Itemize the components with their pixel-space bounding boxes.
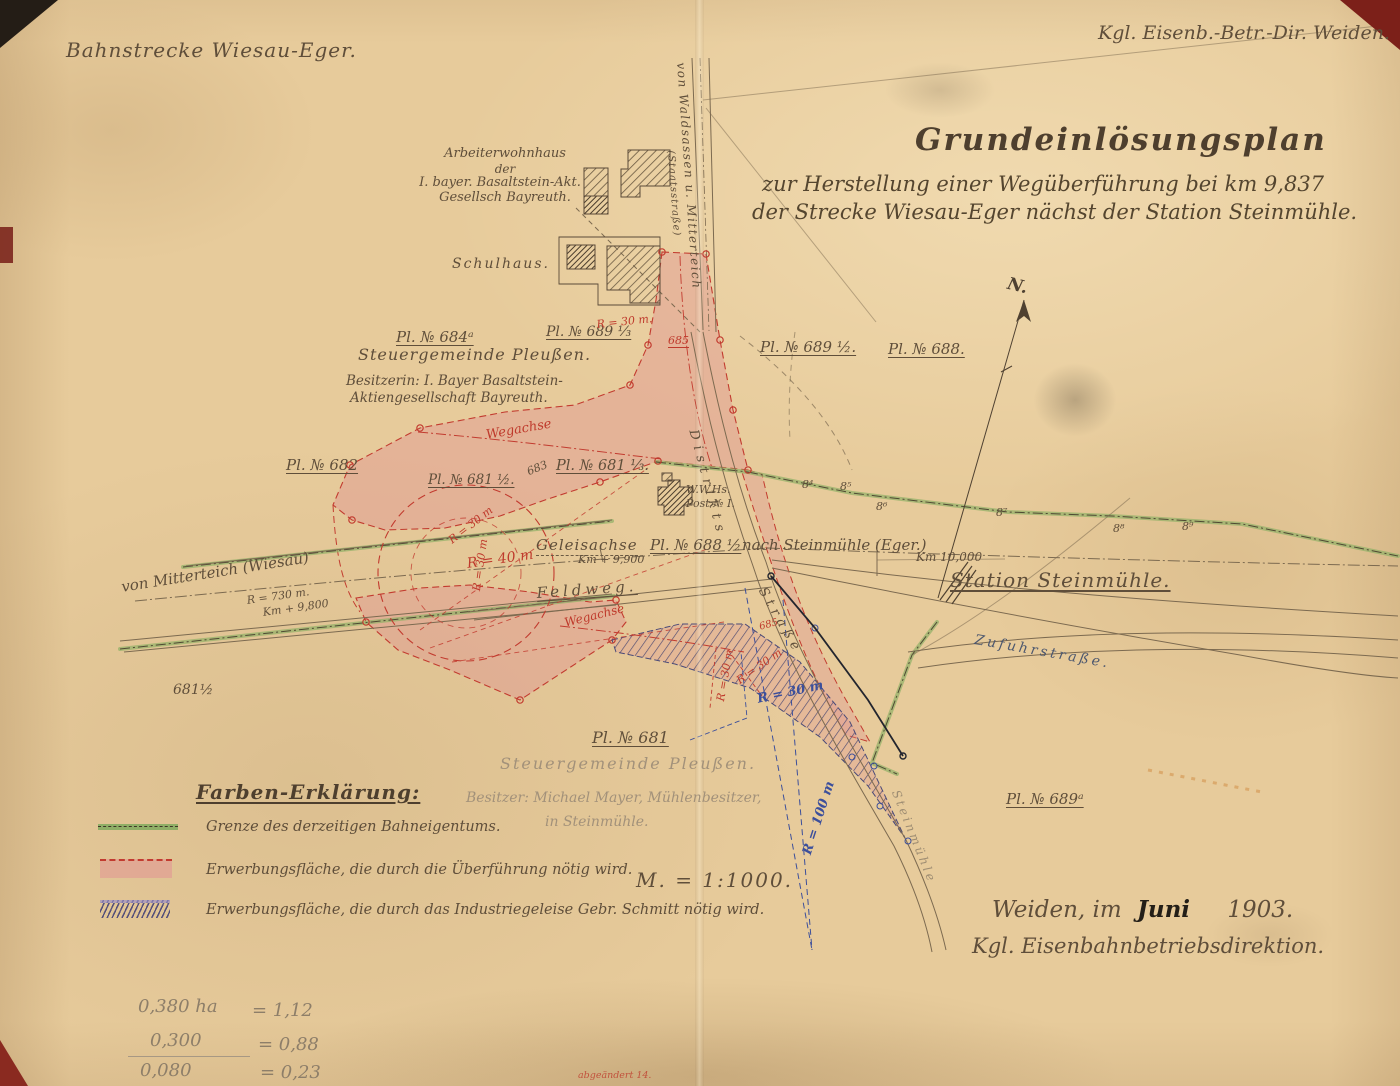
plan-sheet: Bahnstrecke Wiesau-Eger. Kgl. Eisenb.-Be… <box>0 0 1400 1086</box>
plan-subtitle-1: zur Herstellung einer Wegüberführung bei… <box>762 172 1324 196</box>
calc-value-1: = 1,12 <box>252 1000 313 1021</box>
calc-area-2: 0,300 <box>150 1030 202 1051</box>
calc-area-1: 0,380 ha <box>138 996 218 1017</box>
parcel-689-12: Pl. № 689 ½. <box>760 338 856 356</box>
parcel-685: 685 <box>668 334 689 347</box>
parcel-684a: Pl. № 684ᵃ <box>396 328 474 346</box>
schoolhouse-label: Schulhaus. <box>452 256 550 272</box>
survey-marker-84: 8⁴ <box>802 478 813 491</box>
survey-marker-85: 8⁵ <box>840 480 851 493</box>
workers-house-label-3: I. bayer. Basaltstein-Akt. <box>395 175 605 190</box>
survey-marker-87: 8⁷ <box>996 506 1007 519</box>
edge-mark-left <box>0 227 13 263</box>
parcel-681-12-left: 681½ <box>173 682 213 698</box>
signature-month: Juni <box>1137 896 1190 923</box>
legend-swatch-overpass <box>100 859 172 878</box>
parcel-688-12: Pl. № 688 ½ <box>650 536 741 554</box>
calc-value-3: = 0,23 <box>260 1062 321 1083</box>
workers-house-label-4: Gesellsch Bayreuth. <box>400 190 610 205</box>
plan-subtitle-2: der Strecke Wiesau-Eger nächst der Stati… <box>752 200 1357 224</box>
legend-swatch-industrial <box>100 900 170 918</box>
survey-marker-88: 8⁸ <box>1113 522 1124 535</box>
legend-item-industrial: Erwerbungsfläche, die durch das Industri… <box>206 902 764 918</box>
workers-house-label-1: Arbeiterwohnhaus <box>400 146 610 161</box>
scale-note: M. = 1:1000. <box>636 868 793 892</box>
signature-authority: Kgl. Eisenbahnbetriebsdirektion. <box>972 934 1324 958</box>
calc-area-3: 0,080 <box>140 1060 192 1081</box>
parcel-689a: Pl. № 689ᵃ <box>1006 790 1084 808</box>
workers-house-label-2: der <box>400 162 610 176</box>
owner-bottom-1: Besitzer: Michael Mayer, Mühlenbesitzer, <box>466 790 762 806</box>
km-10000: Km 10,000 <box>916 550 982 564</box>
survey-marker-89: 8⁹ <box>1182 520 1193 533</box>
parcel-688: Pl. № 688. <box>888 340 965 358</box>
revision-note: abgeändert 14. <box>578 1070 651 1081</box>
owner-top-2: Aktiengesellschaft Bayreuth. <box>350 390 548 406</box>
authority-header: Kgl. Eisenb.-Betr.-Dir. Weiden. <box>1098 22 1390 44</box>
parcel-681-13: Pl. № 681 ⅓. <box>556 458 649 474</box>
calc-divider <box>128 1056 250 1057</box>
signature-place-text: Weiden, im <box>992 897 1122 923</box>
taxdistrict-bottom: Steuergemeinde Pleußen. <box>500 754 756 773</box>
owner-top-1: Besitzerin: I. Bayer Basaltstein- <box>346 373 563 389</box>
parcel-682: Pl. № 682 <box>286 456 358 474</box>
signature-place: Weiden, im Juni 1903. <box>992 896 1293 923</box>
signature-year: 1903. <box>1227 897 1293 923</box>
station-label: Station Steinmühle. <box>950 568 1171 592</box>
taxdistrict-top: Steuergemeinde Pleußen. <box>358 345 591 364</box>
owner-bottom-2: in Steinmühle. <box>545 814 648 830</box>
survey-marker-86: 8⁶ <box>876 500 887 513</box>
legend-item-boundary: Grenze des derzeitigen Bahneigentums. <box>206 819 500 835</box>
legend-title: Farben-Erklärung: <box>196 780 420 804</box>
legend-swatch-boundary <box>98 824 178 830</box>
parcel-681-12: Pl. № 681 ½. <box>428 472 514 488</box>
plan-title: Grundeinlösungsplan <box>915 122 1327 158</box>
orange-flecks <box>1148 770 1262 792</box>
legend-item-overpass: Erwerbungsfläche, die durch die Überführ… <box>206 862 632 878</box>
km-9900: Km + 9,900 <box>578 553 644 566</box>
route-title: Bahnstrecke Wiesau-Eger. <box>66 38 357 62</box>
parcel-681: Pl. № 681 <box>592 728 669 747</box>
calc-value-2: = 0,88 <box>258 1034 319 1055</box>
parcel-688-12-dest: nach Steinmühle (Eger.) <box>742 536 926 554</box>
